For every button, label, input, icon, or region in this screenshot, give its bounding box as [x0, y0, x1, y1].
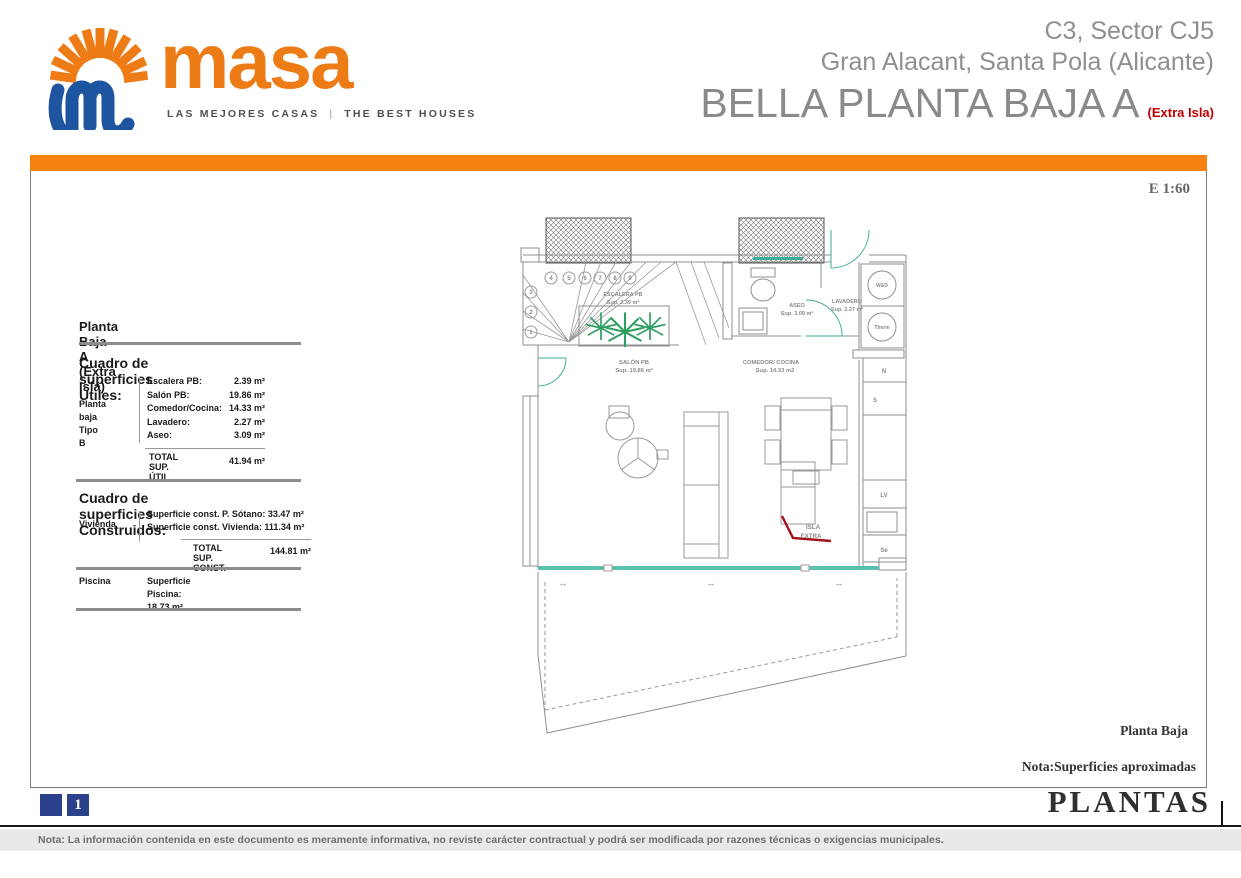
washer-dryer-label: W&D	[876, 283, 888, 289]
floor-plan-drawing: 4 5 6 7 8 9 3 2 1 ESCALERA PB Sup. 2.39 …	[501, 200, 921, 752]
utility-column	[853, 264, 906, 568]
appliance-labels: W&D Therm N S LV Se	[873, 283, 890, 554]
svg-text:↔: ↔	[707, 578, 716, 588]
divider	[76, 567, 301, 570]
utiles-heading: Cuadro de superficies Útiles:	[79, 355, 153, 403]
footer-tick	[1221, 801, 1223, 826]
utiles-rows: Escalera PB:2.39 m² Salón PB:19.86 m² Co…	[147, 375, 265, 443]
footer-rule	[0, 825, 1241, 827]
construidas-total-value: 144.81 m²	[253, 545, 311, 558]
pergola-hatch	[546, 218, 631, 263]
drawing-sheet: E 1:60 Planta Baja A (Extra Isla) Cuadro…	[30, 171, 1207, 788]
terrace-boundary	[538, 572, 906, 733]
comedor-label: COMEDOR/ COCINA	[743, 360, 800, 366]
dining-set	[765, 398, 847, 484]
utiles-total-value: 41.94 m²	[211, 455, 265, 468]
slide-arrows: ↔ ↔ ↔	[559, 578, 844, 588]
svg-text:3: 3	[529, 290, 533, 296]
sheet-title-note: (Extra Isla)	[1148, 105, 1214, 120]
aseo-label: ASEO	[789, 303, 805, 309]
page-marker-square	[40, 794, 62, 816]
svg-text:5: 5	[567, 276, 571, 282]
table-row: Escalera PB:2.39 m²	[147, 375, 265, 389]
isla-extra-label: ISLA	[806, 524, 821, 531]
page-number-badge: 1	[67, 794, 89, 816]
door-track	[604, 565, 612, 571]
approx-note: Nota:Superficies aproximadas	[1022, 759, 1196, 775]
armchair-and-table	[606, 406, 668, 478]
table-row: Salón PB:19.86 m²	[147, 389, 265, 403]
tagline-right: THE BEST HOUSES	[344, 108, 476, 120]
svg-text:7: 7	[598, 276, 602, 282]
dryer-label: Se	[880, 548, 888, 554]
divider	[139, 511, 140, 541]
table-row: Superficie const. P. Sótano: 33.47 m²	[147, 508, 319, 521]
project-header: C3, Sector CJ5 Gran Alacant, Santa Pola …	[700, 16, 1214, 136]
shower-tray-icon	[739, 308, 767, 334]
svg-text:↔: ↔	[559, 578, 568, 588]
brand-wordmark: masa	[160, 16, 352, 106]
pergola-hatch	[739, 218, 824, 263]
masa-logo-icon	[36, 24, 160, 130]
project-location: Gran Alacant, Santa Pola (Alicante)	[700, 47, 1214, 78]
construidas-group-label: Vivienda	[79, 518, 116, 531]
escalera-area: Sup. 2.39 m²	[607, 299, 640, 306]
door-track	[801, 565, 809, 571]
svg-text:↔: ↔	[835, 578, 844, 588]
table-row: Superficie const. Vivienda: 111.34 m²	[147, 521, 319, 534]
plan-caption: Planta Baja	[1120, 723, 1188, 739]
divider	[139, 377, 140, 443]
table-row: Lavadero:2.27 m²	[147, 416, 265, 430]
svg-text:6: 6	[583, 276, 587, 282]
accent-bar	[30, 155, 1207, 171]
plan-sheet-page: masa LAS MEJORES CASAS|THE BEST HOUSES C…	[0, 0, 1241, 878]
disclaimer-strip: Nota: La información contenida en este d…	[0, 829, 1241, 851]
lavadero-area: Sup. 2.27 m²	[831, 306, 864, 313]
utiles-total-label: TOTAL SUP. ÚTIL	[149, 452, 178, 482]
svg-text:1: 1	[529, 330, 533, 336]
section-title: PLANTAS	[1048, 784, 1211, 820]
thermo-label: Therm	[874, 325, 890, 331]
s-unit-label: S	[873, 398, 877, 404]
salon-label: SALÓN PB	[619, 358, 649, 366]
table-row: Comedor/Cocina:14.33 m²	[147, 402, 265, 416]
dishwasher-label: LV	[880, 493, 887, 499]
brand-tagline: LAS MEJORES CASAS|THE BEST HOUSES	[167, 108, 476, 120]
construidas-rows: Superficie const. P. Sótano: 33.47 m² Su…	[147, 508, 319, 534]
project-sector: C3, Sector CJ5	[700, 16, 1214, 47]
divider	[145, 448, 265, 449]
scale-label: E 1:60	[1149, 181, 1190, 198]
divider	[79, 342, 301, 345]
fridge-label: N	[882, 369, 886, 375]
isla-extra-label2: EXTRA	[801, 533, 823, 540]
utiles-group-label: Planta baja Tipo B	[79, 398, 106, 450]
divider	[76, 608, 301, 611]
comedor-area: Sup. 14.33 m2	[756, 368, 795, 374]
svg-text:2: 2	[529, 310, 533, 316]
terrace-dashed-offset	[545, 578, 897, 710]
salon-area: Sup. 19.86 m²	[615, 367, 652, 374]
tagline-separator: |	[329, 108, 334, 120]
table-row: Aseo:3.09 m²	[147, 429, 265, 443]
toilet-icon	[751, 268, 775, 301]
divider	[181, 539, 311, 540]
sheet-title-text: BELLA PLANTA BAJA A	[700, 80, 1139, 126]
sheet-title: BELLA PLANTA BAJA A(Extra Isla)	[700, 80, 1214, 136]
svg-text:4: 4	[549, 276, 553, 282]
piscina-label: Piscina	[79, 575, 111, 588]
lavadero-label: LAVADERO	[832, 299, 863, 305]
svg-text:8: 8	[613, 276, 617, 282]
disclaimer-text: Nota: La información contenida en este d…	[0, 829, 1241, 851]
divider	[76, 479, 301, 482]
tagline-left: LAS MEJORES CASAS	[167, 108, 319, 120]
sofa	[684, 412, 728, 558]
escalera-label: ESCALERA PB	[603, 292, 642, 298]
aseo-area: Sup. 3.09 m²	[781, 310, 814, 317]
